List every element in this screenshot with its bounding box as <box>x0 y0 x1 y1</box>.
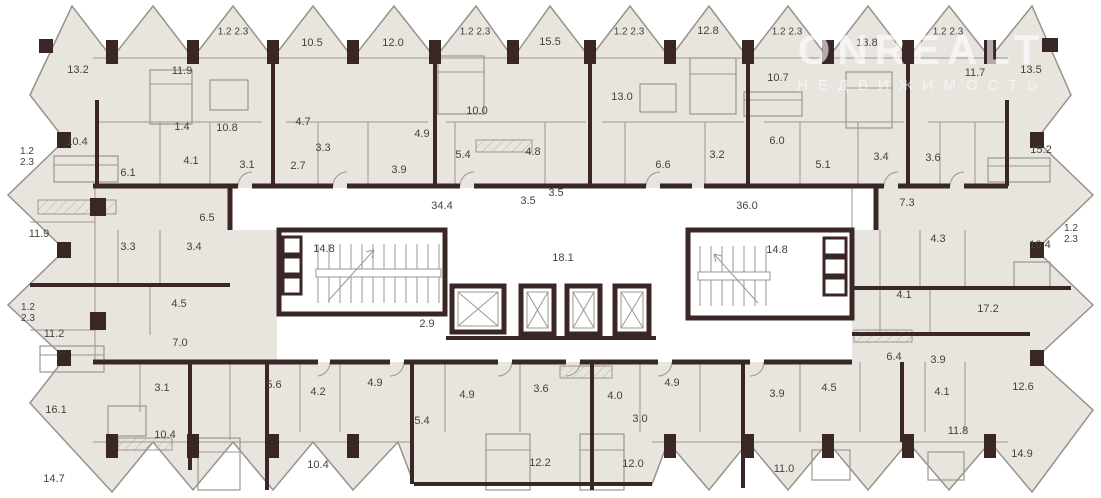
floor-plan: 13.211.91.2 2.310.512.01.2 2.315.51.2 2.… <box>0 0 1101 498</box>
stairwell-left <box>279 230 445 314</box>
stairwell-right <box>688 230 852 318</box>
elevator-bank <box>452 286 649 334</box>
floor-plan-drawing <box>0 0 1101 498</box>
